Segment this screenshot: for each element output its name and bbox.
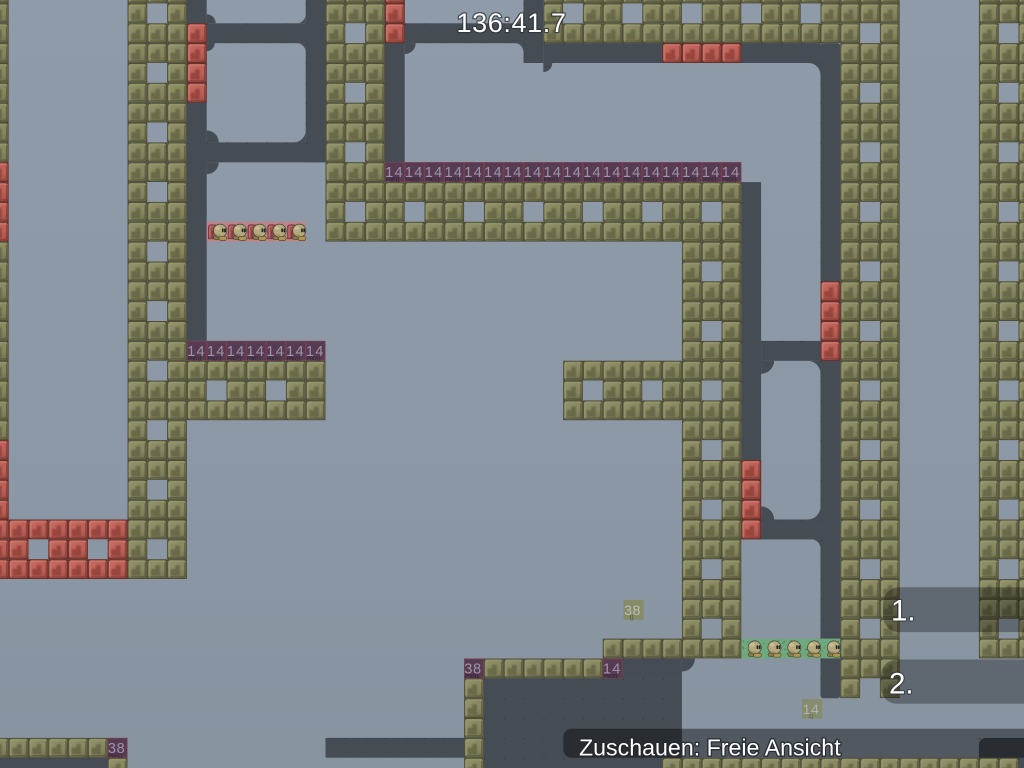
svg-text:Zuschauen: Freie Ansicht: Zuschauen: Freie Ansicht — [579, 735, 841, 761]
svg-text:136:41.7: 136:41.7 — [457, 8, 567, 38]
svg-text:2.: 2. — [889, 667, 914, 700]
svg-text:1.: 1. — [891, 594, 916, 627]
